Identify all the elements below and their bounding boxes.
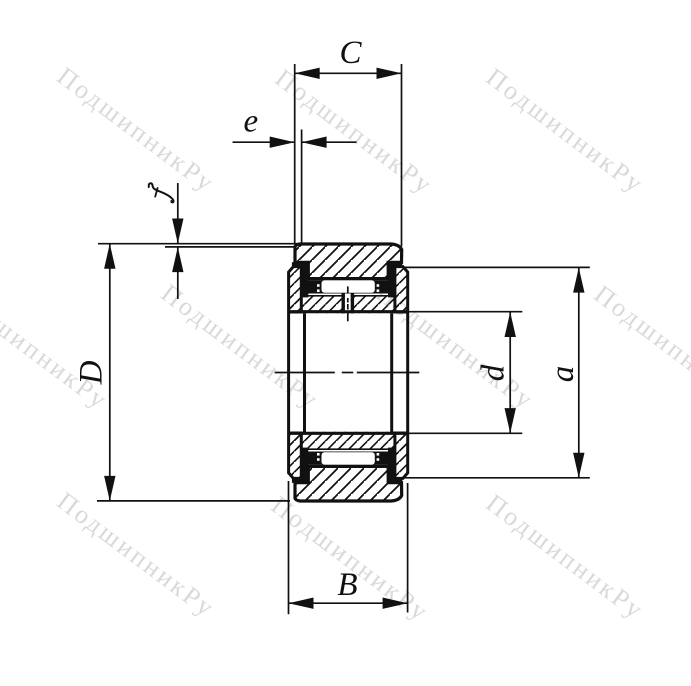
svg-text:B: B	[337, 567, 357, 603]
svg-text:e: e	[243, 104, 258, 140]
svg-text:a: a	[545, 366, 581, 383]
svg-text:C: C	[339, 35, 362, 71]
svg-text:D: D	[74, 360, 110, 385]
svg-text:d: d	[476, 364, 512, 381]
